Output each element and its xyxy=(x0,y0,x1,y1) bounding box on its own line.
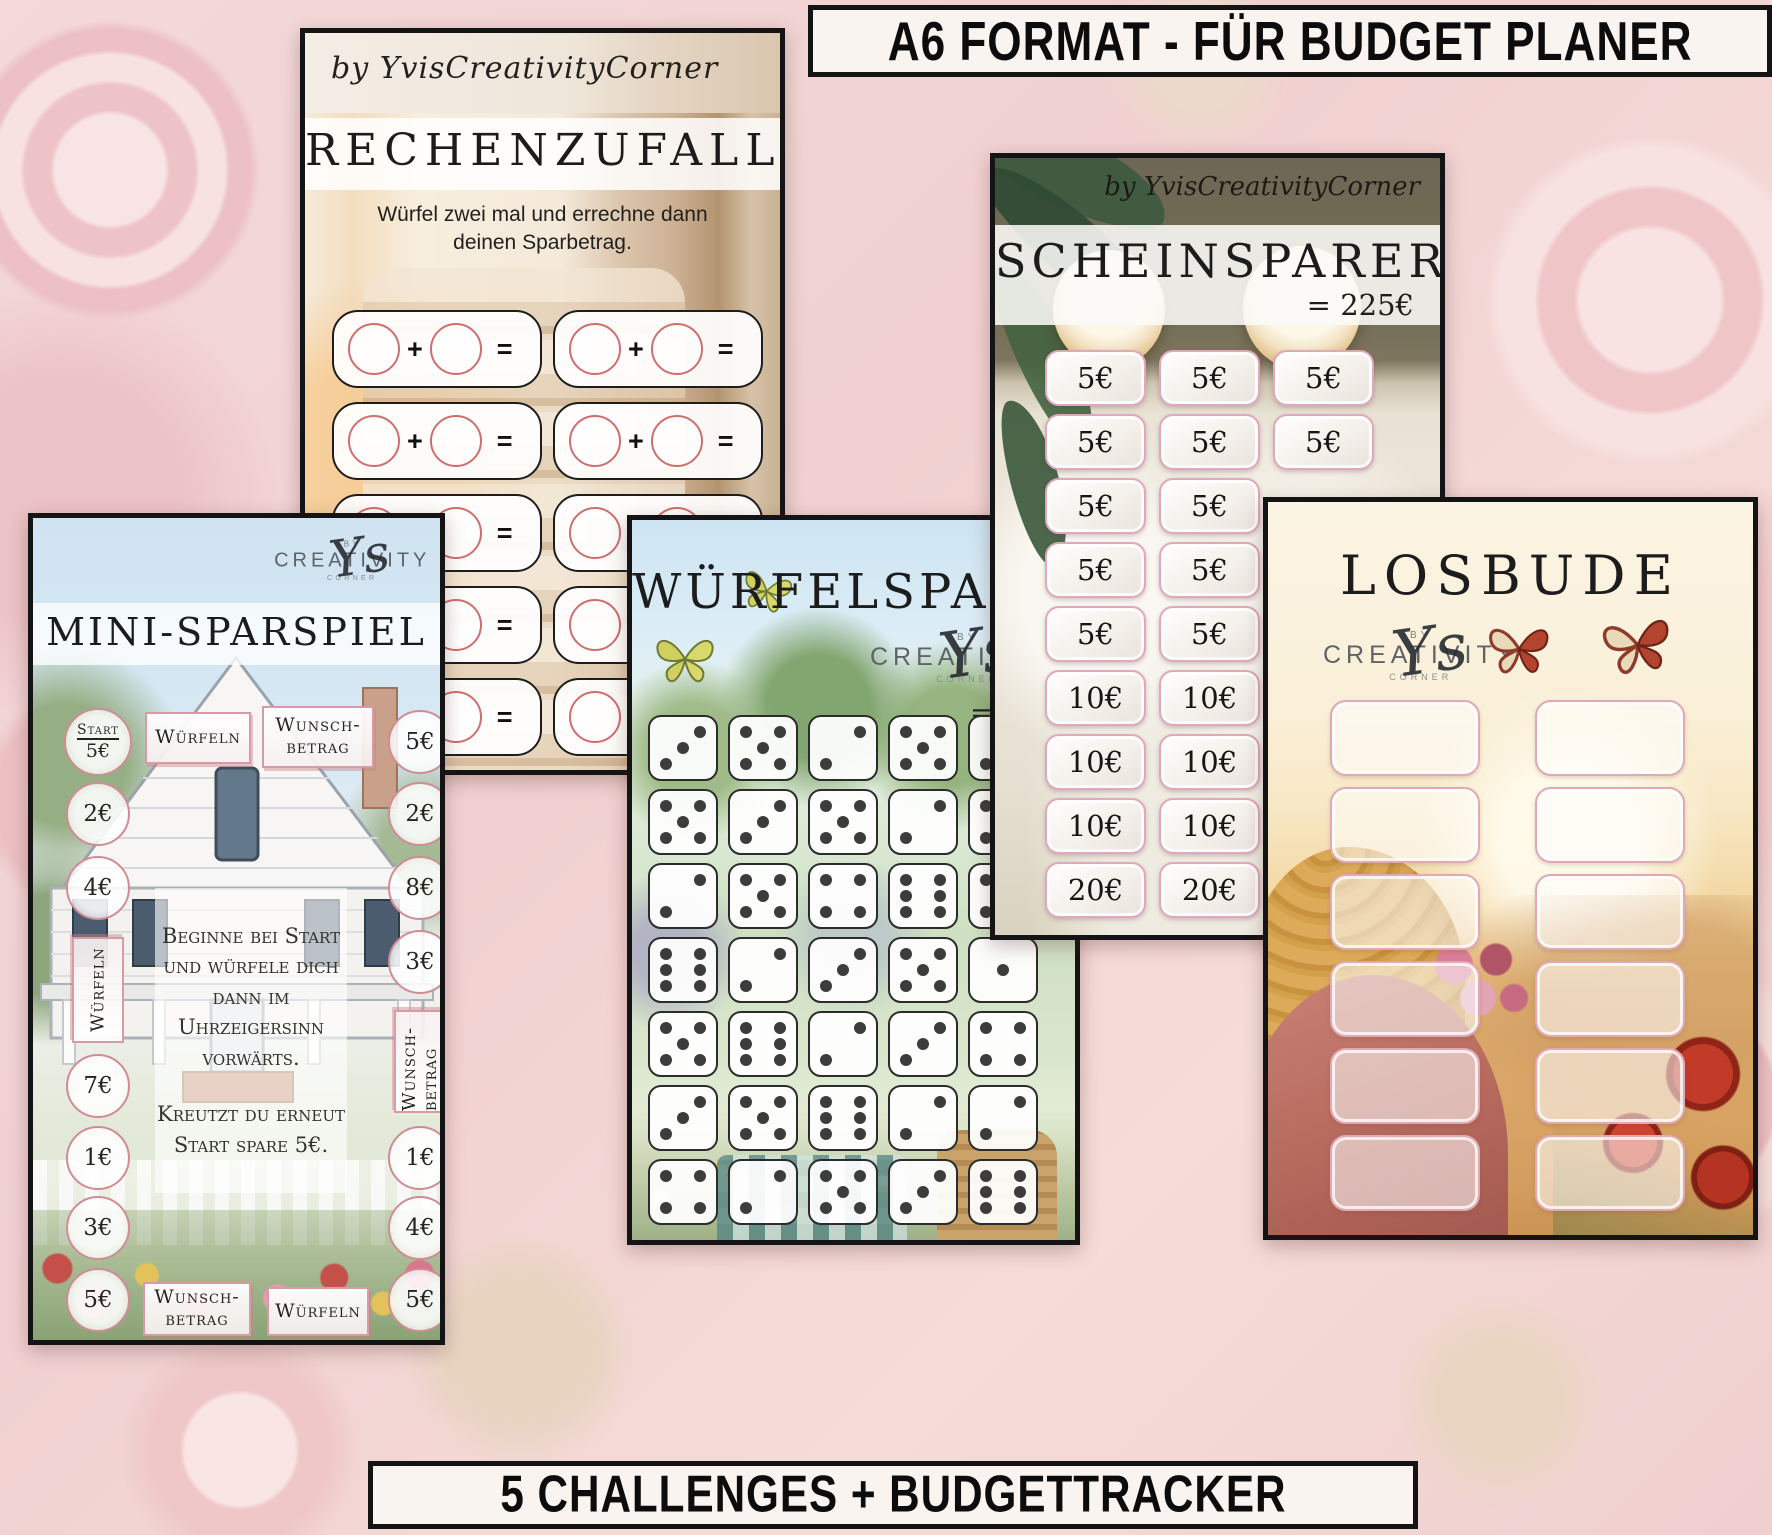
equation-box: += xyxy=(332,402,542,480)
die-3 xyxy=(888,1011,958,1077)
mini-sparspiel-action-box: Würfeln xyxy=(267,1287,369,1336)
dice-value-circle xyxy=(348,415,400,467)
losbude-empty-slot xyxy=(1330,787,1480,863)
die-6 xyxy=(648,937,718,1003)
die-5 xyxy=(808,789,878,855)
scheinsparer-amount-cell: 5€ xyxy=(1045,478,1146,534)
brand-logo-script: by YvisCreativityCorner xyxy=(1104,172,1420,202)
die-2 xyxy=(728,937,798,1003)
start-label: Start xyxy=(77,722,119,740)
equals-sign: = xyxy=(497,610,513,641)
rechenzufall-title: RECHENZUFALL xyxy=(305,125,780,176)
mini-sparspiel-amount-circle: 8€ xyxy=(388,856,445,920)
mini-sparspiel-title: MINI-SPARSPIEL xyxy=(33,610,440,654)
butterfly-icon xyxy=(1594,609,1683,686)
die-6 xyxy=(968,1159,1038,1225)
losbude-empty-slot xyxy=(1535,787,1685,863)
butterfly-icon xyxy=(1483,620,1555,683)
scheinsparer-amount-cell: 5€ xyxy=(1045,350,1146,406)
scheinsparer-amount-cell: 10€ xyxy=(1159,670,1260,726)
die-4 xyxy=(808,863,878,929)
scheinsparer-amount-cell: 5€ xyxy=(1159,414,1260,470)
mini-sparspiel-action-box: Würfeln xyxy=(145,712,251,764)
die-5 xyxy=(728,1085,798,1151)
die-1 xyxy=(968,937,1038,1003)
die-5 xyxy=(728,715,798,781)
die-5 xyxy=(888,715,958,781)
die-2 xyxy=(888,1085,958,1151)
scheinsparer-amount-cell: 5€ xyxy=(1159,606,1260,662)
scheinsparer-amount-cell: 5€ xyxy=(1045,542,1146,598)
die-6 xyxy=(808,1085,878,1151)
scheinsparer-row: 5€5€5€ xyxy=(1045,414,1374,470)
mini-sparspiel-amount-circle: 5€ xyxy=(388,1268,445,1332)
losbude-empty-slot xyxy=(1330,1135,1480,1211)
dice-value-circle xyxy=(651,415,703,467)
equals-sign: = xyxy=(718,334,734,365)
equals-sign: = xyxy=(497,702,513,733)
instruction-paragraph: Beginne bei Start und würfele dich dann … xyxy=(155,921,347,1073)
scheinsparer-amount-cell: 5€ xyxy=(1045,606,1146,662)
mini-sparspiel-amount-circle: 3€ xyxy=(66,1196,130,1260)
mini-sparspiel-amount-circle: 4€ xyxy=(388,1196,445,1260)
dice-value-circle xyxy=(348,323,400,375)
creativity-corner-logo: BY CREATIVITY CORNER Ys xyxy=(274,540,430,582)
equals-sign: = xyxy=(497,334,513,365)
mini-sparspiel-amount-circle: 5€ xyxy=(66,1268,130,1332)
losbude-empty-slot xyxy=(1330,1048,1480,1124)
mini-sparspiel-action-box-vertical: Wunsch-betrag xyxy=(394,1010,445,1113)
scheinsparer-amount-cell: 10€ xyxy=(1159,798,1260,854)
scheinsparer-row: 5€5€5€ xyxy=(1045,350,1374,406)
losbude-empty-slot xyxy=(1330,874,1480,950)
die-2 xyxy=(808,715,878,781)
losbude-slot-grid xyxy=(1330,700,1685,1211)
losbude-empty-slot xyxy=(1330,700,1480,776)
card-losbude: LOSBUDE BY CREATIVITY CORNER Ys xyxy=(1263,497,1758,1240)
scheinsparer-amount-cell: 5€ xyxy=(1273,350,1374,406)
equation-box: += xyxy=(553,310,763,388)
die-2 xyxy=(648,863,718,929)
top-banner-text: A6 FORMAT - FÜR BUDGET PLANER xyxy=(888,9,1693,73)
equals-sign: = xyxy=(497,518,513,549)
die-2 xyxy=(728,1159,798,1225)
brand-logo-script: by YvisCreativityCorner xyxy=(331,51,718,86)
die-4 xyxy=(648,1159,718,1225)
scheinsparer-amount-cell: 5€ xyxy=(1159,350,1260,406)
die-6 xyxy=(728,1011,798,1077)
die-5 xyxy=(728,863,798,929)
die-5 xyxy=(648,1011,718,1077)
equals-sign: = xyxy=(718,426,734,457)
rechenzufall-subtitle: Würfel zwei mal und errechne dann deinen… xyxy=(365,201,720,258)
losbude-title: LOSBUDE xyxy=(1268,544,1753,607)
mini-sparspiel-action-box: Wunsch-betrag xyxy=(262,706,374,768)
die-5 xyxy=(888,937,958,1003)
butterfly-icon xyxy=(650,632,720,691)
losbude-empty-slot xyxy=(1535,700,1685,776)
top-banner: A6 FORMAT - FÜR BUDGET PLANER xyxy=(808,5,1772,77)
equals-sign: = xyxy=(497,426,513,457)
dice-value-circle xyxy=(651,323,703,375)
mini-sparspiel-amount-circle: 4€ xyxy=(66,856,130,920)
dice-value-circle xyxy=(569,507,621,559)
losbude-empty-slot xyxy=(1535,961,1685,1037)
mini-sparspiel-start-circle: Start5€ xyxy=(64,708,132,776)
mini-sparspiel-amount-circle: 1€ xyxy=(66,1126,130,1190)
mini-sparspiel-action-box: Wunsch-betrag xyxy=(143,1282,251,1336)
instruction-paragraph: Kreutzt du erneut Start spare 5€. xyxy=(155,1099,347,1160)
product-showcase: by YvisCreativityCorner RECHENZUFALL Wür… xyxy=(0,0,1772,1535)
die-2 xyxy=(888,789,958,855)
dice-value-circle xyxy=(569,599,621,651)
card-mini-sparspiel: BY CREATIVITY CORNER Ys MINI-SPARSPIEL W… xyxy=(28,513,445,1345)
die-4 xyxy=(968,1011,1038,1077)
mini-sparspiel-amount-circle: 2€ xyxy=(388,782,445,846)
dice-value-circle xyxy=(569,415,621,467)
die-5 xyxy=(808,1159,878,1225)
mini-sparspiel-amount-circle: 2€ xyxy=(66,782,130,846)
die-3 xyxy=(888,1159,958,1225)
scheinsparer-amount-cell: 5€ xyxy=(1045,414,1146,470)
start-amount: 5€ xyxy=(86,740,110,762)
scheinsparer-amount-cell: 5€ xyxy=(1273,414,1374,470)
die-3 xyxy=(648,1085,718,1151)
dice-value-circle xyxy=(569,323,621,375)
mini-sparspiel-amount-circle: 1€ xyxy=(388,1126,445,1190)
dice-value-circle xyxy=(430,323,482,375)
rechenzufall-header-strip: by YvisCreativityCorner xyxy=(305,33,780,113)
die-2 xyxy=(808,1011,878,1077)
die-2 xyxy=(968,1085,1038,1151)
mini-sparspiel-amount-circle: 7€ xyxy=(66,1054,130,1118)
bottom-banner-text: 5 CHALLENGES + BUDGETTRACKER xyxy=(500,1466,1286,1525)
mini-sparspiel-instructions: Beginne bei Start und würfele dich dann … xyxy=(155,888,347,1193)
bottom-banner: 5 CHALLENGES + BUDGETTRACKER xyxy=(368,1461,1418,1529)
plus-sign: + xyxy=(407,334,423,365)
scheinsparer-amount-cell: 20€ xyxy=(1045,862,1146,918)
scheinsparer-amount-cell: 10€ xyxy=(1045,670,1146,726)
scheinsparer-amount-cell: 20€ xyxy=(1159,862,1260,918)
losbude-empty-slot xyxy=(1330,961,1480,1037)
mini-sparspiel-amount-circle: 3€ xyxy=(388,930,445,994)
plus-sign: + xyxy=(628,334,644,365)
losbude-empty-slot xyxy=(1535,874,1685,950)
scheinsparer-title: SCHEINSPARER xyxy=(995,234,1440,288)
equation-box: += xyxy=(332,310,542,388)
losbude-empty-slot xyxy=(1535,1135,1685,1211)
scheinsparer-amount-cell: 5€ xyxy=(1159,478,1260,534)
die-6 xyxy=(888,863,958,929)
mini-sparspiel-action-box-vertical: Würfeln xyxy=(72,937,124,1043)
equation-box: += xyxy=(553,402,763,480)
plus-sign: + xyxy=(628,426,644,457)
die-3 xyxy=(728,789,798,855)
scheinsparer-amount-cell: 10€ xyxy=(1045,798,1146,854)
scheinsparer-amount-cell: 10€ xyxy=(1045,734,1146,790)
dice-value-circle xyxy=(569,691,621,743)
die-3 xyxy=(648,715,718,781)
die-5 xyxy=(648,789,718,855)
losbude-empty-slot xyxy=(1535,1048,1685,1124)
scheinsparer-amount-cell: 5€ xyxy=(1159,542,1260,598)
dice-grid xyxy=(648,715,1038,1225)
scheinsparer-total: = 225€ xyxy=(1307,288,1414,322)
die-3 xyxy=(808,937,878,1003)
scheinsparer-amount-cell: 10€ xyxy=(1159,734,1260,790)
dice-value-circle xyxy=(430,415,482,467)
mini-sparspiel-amount-circle: 5€ xyxy=(388,710,445,774)
plus-sign: + xyxy=(407,426,423,457)
